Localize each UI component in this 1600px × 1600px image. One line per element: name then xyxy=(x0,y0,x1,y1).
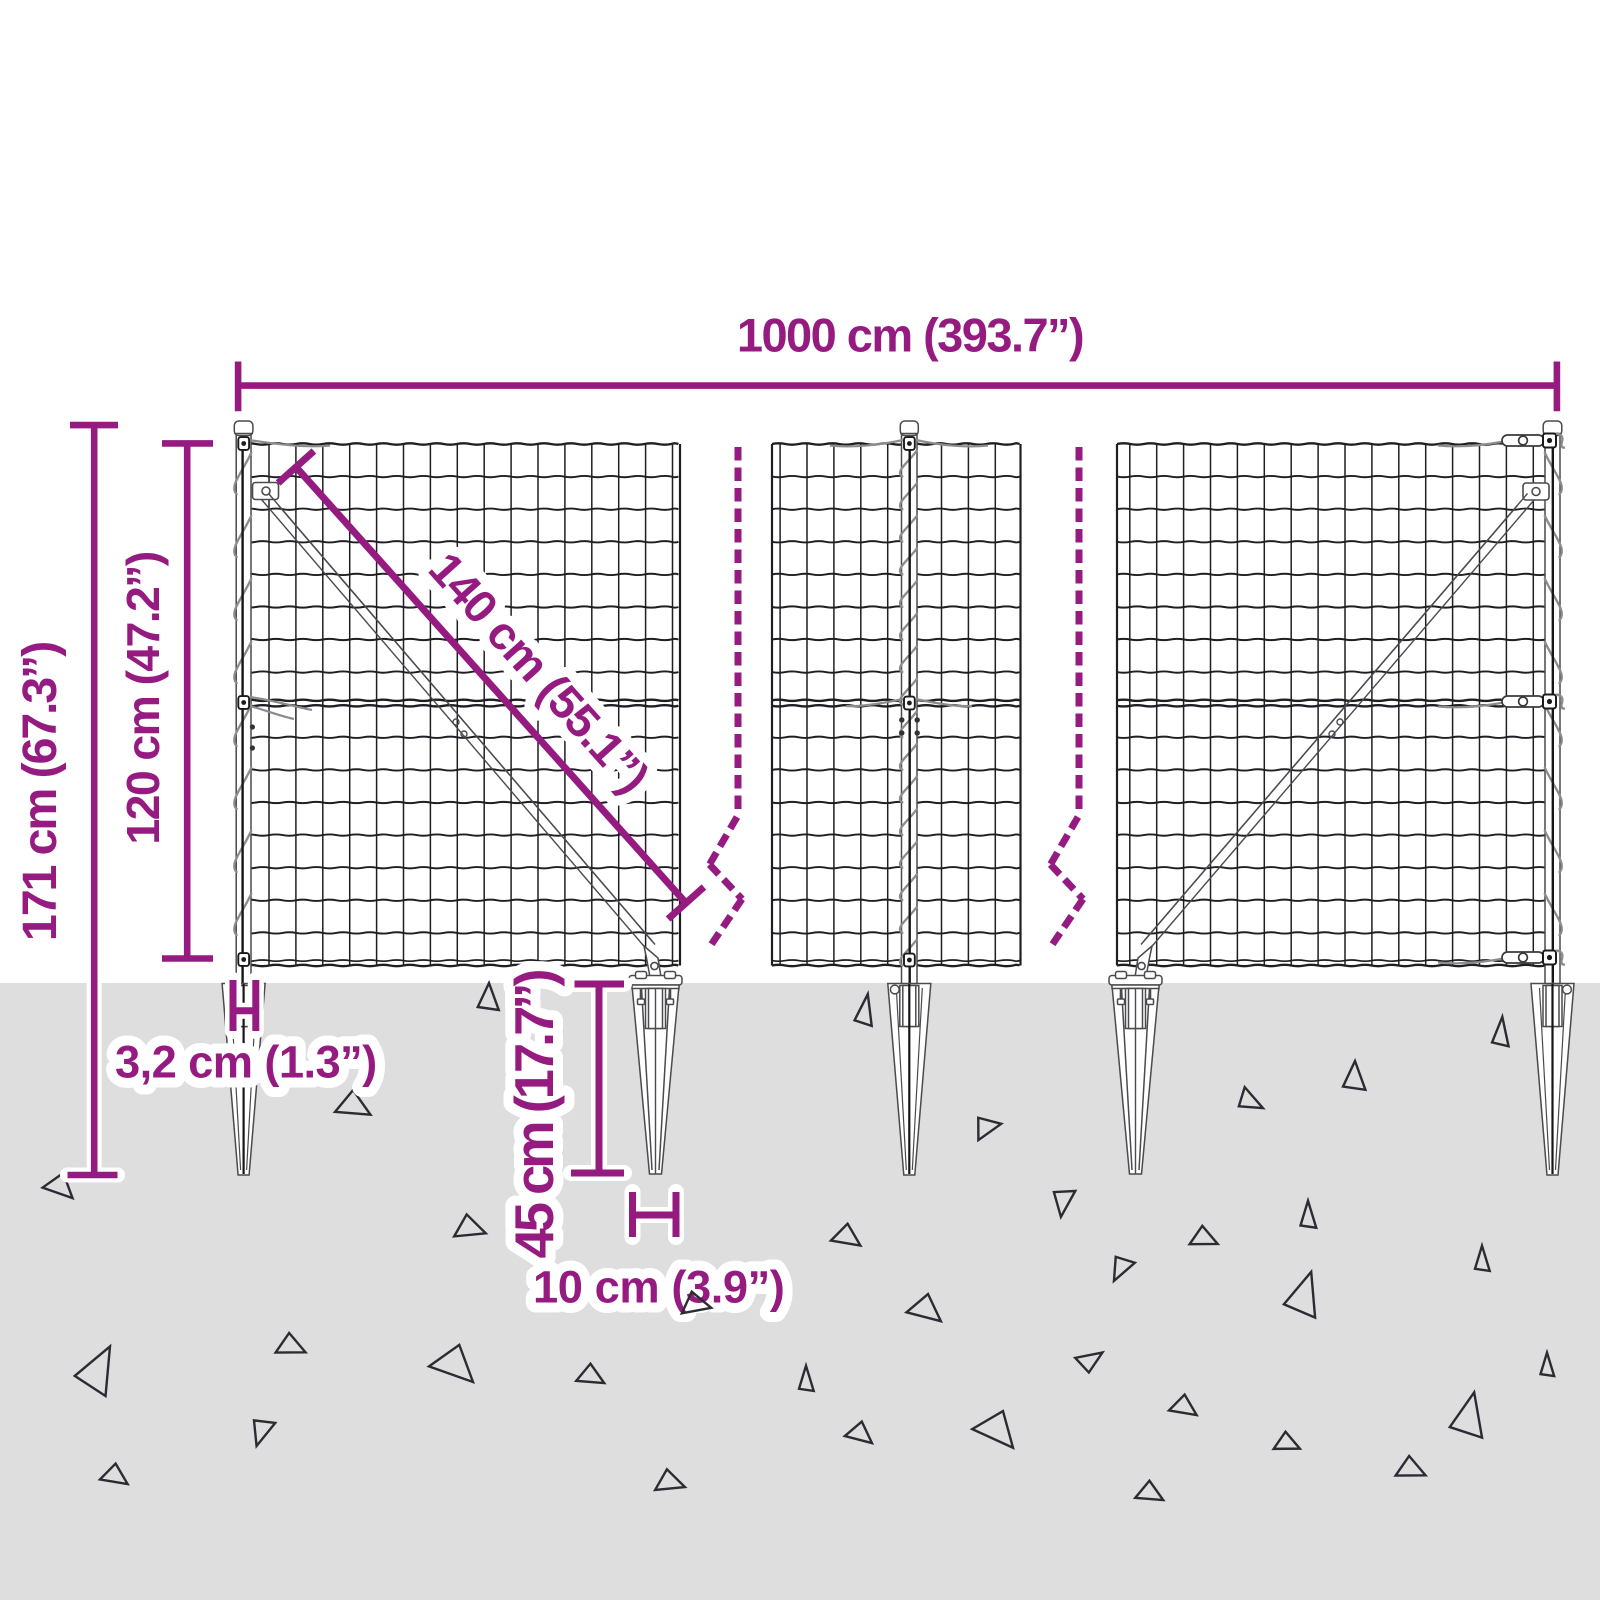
svg-text:171 cm (67.3”): 171 cm (67.3”) xyxy=(13,643,67,941)
svg-text:120 cm (47.2”): 120 cm (47.2”) xyxy=(117,552,169,844)
svg-text:1000 cm (393.7”): 1000 cm (393.7”) xyxy=(737,308,1083,361)
svg-text:3,2 cm (1.3”): 3,2 cm (1.3”) xyxy=(115,1037,377,1088)
svg-text:45 cm (17.7”): 45 cm (17.7”) xyxy=(504,971,565,1259)
svg-text:10 cm (3.9”): 10 cm (3.9”) xyxy=(533,1262,784,1313)
